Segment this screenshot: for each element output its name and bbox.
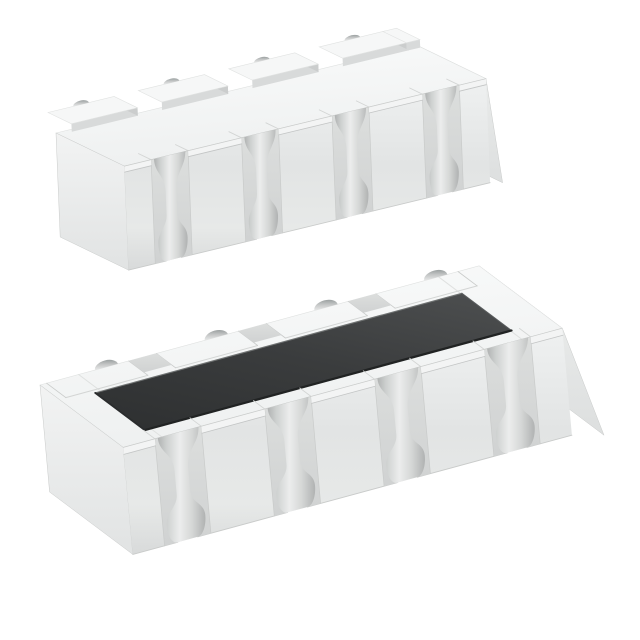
product-photo	[0, 0, 640, 640]
product-image	[0, 0, 640, 640]
